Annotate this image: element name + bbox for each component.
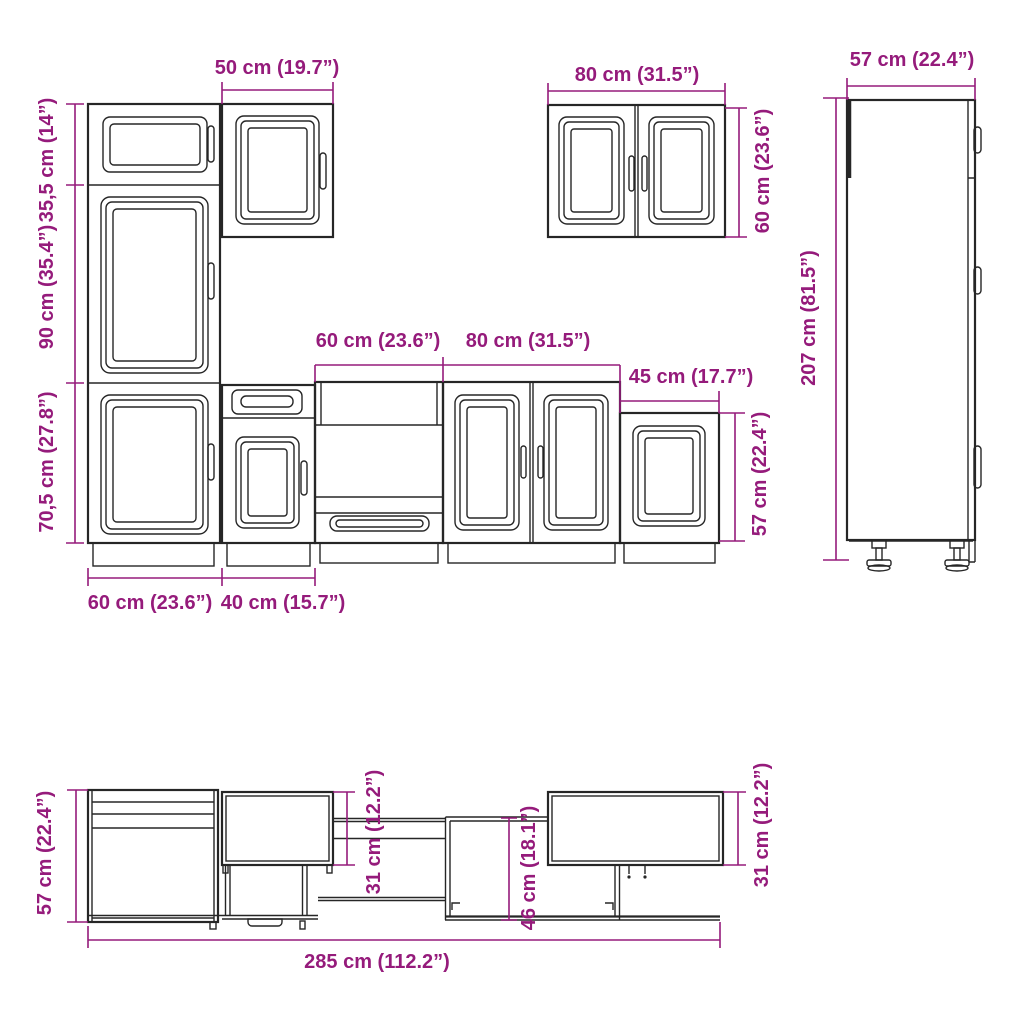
tall-cabinet-side-view	[847, 100, 981, 571]
wall-cabinet-50-front-view	[222, 104, 333, 237]
door-handle	[538, 446, 543, 478]
door-handle	[301, 461, 307, 495]
door-handle	[320, 153, 326, 189]
door-handle	[208, 263, 214, 299]
plinth	[624, 543, 715, 563]
dim-tall-unit-height-bottom: 70,5 cm (27.8”)	[36, 391, 58, 532]
dim-base-row-oven-width: 60 cm (23.6”)	[316, 330, 441, 352]
base-cabinet-40-front-view	[222, 385, 315, 566]
door-handle	[208, 444, 214, 480]
plinth	[448, 543, 615, 563]
dim-tall-unit-top-width: 50 cm (19.7”)	[215, 57, 340, 79]
dim-side-view-depth: 57 cm (22.4”)	[850, 49, 975, 71]
plinth	[93, 543, 214, 566]
base-cabinet-45-front-view	[620, 413, 719, 563]
plinth	[320, 543, 438, 563]
dim-tall-unit-width-right: 40 cm (15.7”)	[221, 592, 346, 614]
dim-tall-unit-height-mid: 90 cm (35.4”)	[36, 225, 58, 350]
dim-wall-cabinet-height: 60 cm (23.6”)	[752, 109, 774, 234]
dim-plan-depth-base: 57 cm (22.4”)	[34, 791, 56, 916]
diagram-page: 50 cm (19.7”) 35,5 cm (14”) 90 cm (35.4”…	[0, 0, 1024, 1024]
dim-side-view-height: 207 cm (81.5”)	[798, 250, 820, 386]
dimension-labels: 50 cm (19.7”) 35,5 cm (14”) 90 cm (35.4”…	[34, 49, 974, 973]
tall-unit-front-view	[88, 104, 220, 566]
door-handle	[642, 156, 647, 191]
dim-plan-depth-wall-left: 31 cm (12.2”)	[363, 770, 385, 895]
dim-base-row-double-width: 80 cm (31.5”)	[466, 330, 591, 352]
base-cabinet-80-front-view	[443, 382, 620, 563]
towel-rail	[330, 516, 429, 531]
dim-plan-depth-wall-right: 31 cm (12.2”)	[751, 763, 773, 888]
dim-plan-total-width: 285 cm (112.2”)	[304, 951, 450, 973]
dim-tall-unit-width-left: 60 cm (23.6”)	[88, 592, 213, 614]
drawer-handle	[208, 126, 214, 162]
plinth	[227, 543, 310, 566]
dim-plan-depth-mid: 46 cm (18.1”)	[518, 806, 540, 931]
wall-cabinet-80-front-view	[548, 105, 725, 237]
dim-wall-cabinet-width: 80 cm (31.5”)	[575, 64, 700, 86]
dim-base-row-height: 57 cm (22.4”)	[749, 412, 771, 537]
oven-cabinet-60-front-view	[315, 382, 443, 563]
adjustable-feet	[867, 540, 969, 571]
handle-recess	[248, 919, 282, 926]
dim-base-row-single-width: 45 cm (17.7”)	[629, 366, 754, 388]
kitchen-cabinet-dimension-diagram: 50 cm (19.7”) 35,5 cm (14”) 90 cm (35.4”…	[0, 0, 1024, 1024]
door-handle	[629, 156, 634, 191]
door-handle	[521, 446, 526, 478]
plan-view	[88, 790, 723, 929]
dim-tall-unit-height-top: 35,5 cm (14”)	[36, 98, 58, 223]
